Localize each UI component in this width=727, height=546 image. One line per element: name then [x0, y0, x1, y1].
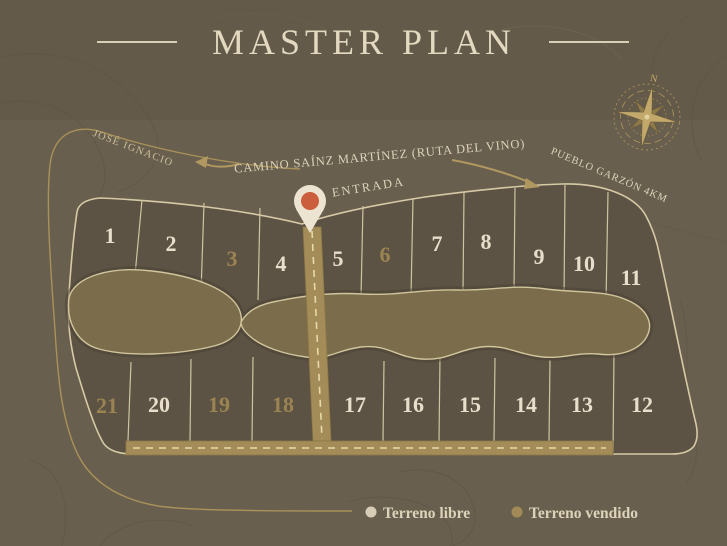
legend-sold-label: Terreno vendido — [529, 505, 638, 522]
lot-label-16: 16 — [402, 392, 424, 417]
lot-label-12: 12 — [631, 392, 653, 417]
lot-label-8: 8 — [481, 229, 492, 254]
page-title: MASTER PLAN — [212, 22, 516, 62]
legend-free-dot — [366, 507, 377, 518]
lot-label-14: 14 — [515, 392, 537, 417]
lot-label-6: 6 — [380, 242, 391, 267]
lot-label-19: 19 — [208, 392, 230, 417]
lot-label-11: 11 — [621, 265, 642, 290]
lot-label-4: 4 — [276, 251, 287, 276]
location-pin-dot — [301, 192, 319, 210]
lot-label-9: 9 — [534, 244, 545, 269]
lot-label-2: 2 — [166, 231, 177, 256]
master-plan-poster: 1 2 3 4 5 6 7 8 9 10 11 12 13 14 15 16 1… — [0, 0, 727, 546]
lot-label-20: 20 — [148, 392, 170, 417]
lot-label-7: 7 — [432, 231, 443, 256]
lot-label-18: 18 — [272, 392, 294, 417]
lot-label-10: 10 — [573, 251, 595, 276]
legend-sold-dot — [512, 507, 523, 518]
lot-label-13: 13 — [571, 392, 593, 417]
lot-label-17: 17 — [344, 392, 366, 417]
site-plan-map: 1 2 3 4 5 6 7 8 9 10 11 12 13 14 15 16 1… — [0, 0, 727, 546]
lot-label-1: 1 — [105, 223, 116, 248]
lot-label-21: 21 — [96, 393, 118, 418]
legend-free-label: Terreno libre — [383, 505, 470, 522]
lot-label-3: 3 — [227, 246, 238, 271]
lot-label-15: 15 — [459, 392, 481, 417]
lot-label-5: 5 — [333, 246, 344, 271]
